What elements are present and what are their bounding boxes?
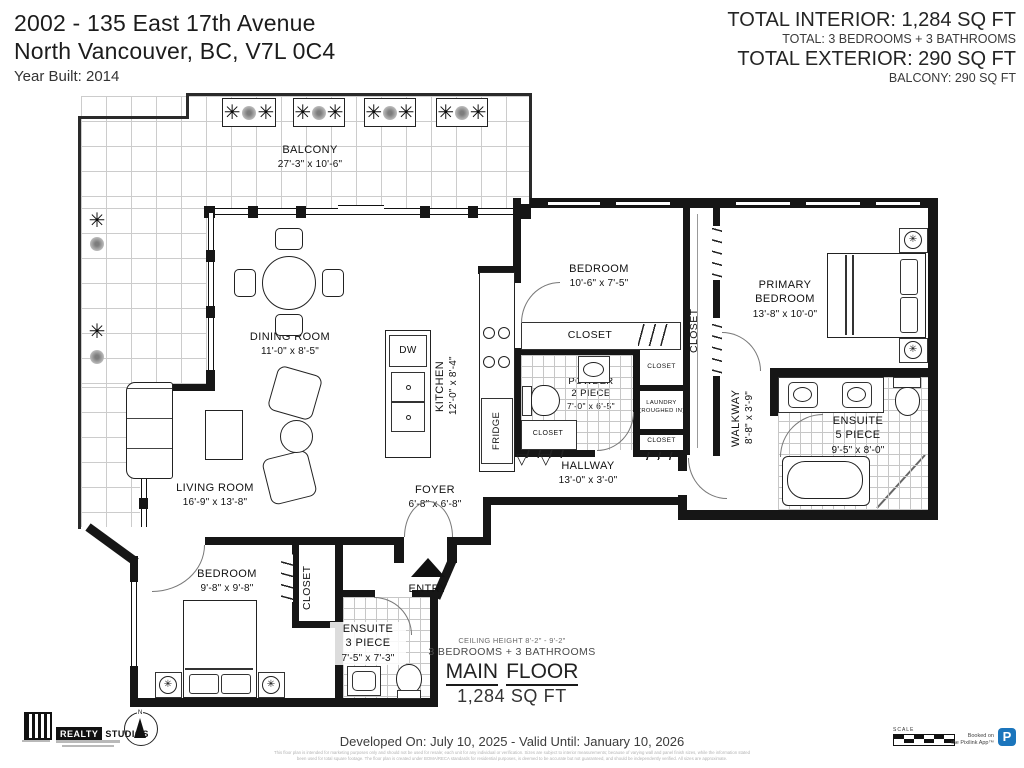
balcony-edge <box>78 116 81 529</box>
closet-wall <box>292 545 299 625</box>
balcony-plant: ✳ <box>83 208 111 254</box>
bifold-door <box>281 554 293 602</box>
disclaimer-line: This floor plan is intended for marketin… <box>0 750 1024 756</box>
closet-label: CLOSET <box>640 363 683 371</box>
shrub-icon <box>455 106 469 120</box>
wall-post <box>139 498 148 509</box>
wall-post <box>206 370 215 384</box>
bed-linen-line <box>185 668 253 670</box>
bed-pillow <box>221 674 251 694</box>
door-leaf-icon: ▽ <box>540 452 552 467</box>
planter-box: ✳✳ <box>222 98 276 127</box>
pixilink-p: P <box>1003 729 1012 744</box>
wall-segment <box>343 590 375 597</box>
plant-icon: ✳ <box>257 103 274 123</box>
wall-segment <box>678 495 687 512</box>
cabinet-knob <box>406 415 411 420</box>
primary-door-arc <box>722 332 761 371</box>
primary-bedroom-label: PRIMARY BEDROOM 13'-8" x 10'-0" <box>743 278 827 321</box>
wall-segment <box>130 556 138 582</box>
dining-chair <box>322 269 344 297</box>
balcony-edge <box>186 93 532 96</box>
ceiling-fan-icon: ✳ <box>159 676 177 694</box>
bifold-door <box>712 318 722 376</box>
powder-closet: CLOSET <box>521 420 577 450</box>
balcony-plant: ✳ <box>83 318 111 368</box>
entry-arrow <box>411 558 445 577</box>
qr-code <box>24 712 52 740</box>
shrub-icon <box>383 106 397 120</box>
stove-burner <box>498 356 510 368</box>
ceiling-fan-icon: ✳ <box>262 676 280 694</box>
entry-jamb <box>394 537 404 563</box>
walkway-door-arc <box>688 458 727 499</box>
nightstand: ✳ <box>155 672 182 698</box>
wall-segment <box>285 537 403 545</box>
dining-chair <box>275 314 303 336</box>
living-room-label: LIVING ROOM 16'-9" x 13'-8" <box>165 481 265 510</box>
window <box>736 201 790 206</box>
window-wall <box>208 213 214 385</box>
wall-post <box>296 206 306 218</box>
nightstand: ✳ <box>258 672 285 698</box>
total-interior-sub: TOTAL: 3 BEDROOMS + 3 BATHROOMS <box>727 32 1016 47</box>
floor-word: MAIN <box>446 660 499 686</box>
bathtub <box>782 456 870 506</box>
sink-basin <box>793 387 812 402</box>
plant-icon: ✳ <box>470 103 487 123</box>
address-line2: North Vancouver, BC, V7L 0C4 <box>14 38 335 65</box>
exterior-wall <box>928 198 938 520</box>
closet-label: CLOSET <box>640 437 683 445</box>
plant-icon: ✳ <box>365 103 382 123</box>
powder-sink <box>578 356 610 383</box>
window <box>806 201 860 206</box>
closet3-label: CLOSET <box>301 552 314 624</box>
stove-burner <box>483 327 495 339</box>
side-table <box>280 420 313 453</box>
bed-linen-line <box>845 255 847 335</box>
balcony-edge <box>186 93 189 118</box>
nightstand: ✳ <box>899 338 928 363</box>
nightstand: ✳ <box>899 228 928 253</box>
totals-block: TOTAL INTERIOR: 1,284 SQ FT TOTAL: 3 BED… <box>727 8 1016 86</box>
bifold-door <box>638 324 668 346</box>
balcony-edge <box>529 93 532 205</box>
disclaimer-line: been used for total square footage. The … <box>0 756 1024 762</box>
compass: N <box>124 712 158 746</box>
ensuite5-toilet-bowl <box>895 387 920 416</box>
shrub-icon <box>242 106 256 120</box>
bedroom2-label: BEDROOM 10'-6" x 7'-5" <box>549 262 649 291</box>
vanity-sink <box>788 382 818 408</box>
island-cabinet <box>391 402 425 432</box>
shrub-icon <box>312 106 326 120</box>
planter-box: ✳✳ <box>293 98 345 127</box>
compass-n-label: N <box>137 710 143 716</box>
floor-plan-page: 2002 - 135 East 17th Avenue North Vancou… <box>0 0 1024 768</box>
stove-burner <box>498 327 510 339</box>
year-built: Year Built: 2014 <box>14 68 119 85</box>
plant-icon: ✳ <box>398 103 415 123</box>
total-exterior: TOTAL EXTERIOR: 290 SQ FT <box>727 47 1016 71</box>
wall-segment <box>770 368 938 377</box>
ensuite3-sink <box>347 666 381 696</box>
walkin-closet-label: CLOSET <box>688 292 701 370</box>
laundry-label: LAUNDRY (ROUGHED IN) <box>639 399 684 415</box>
sink-basin <box>847 387 866 402</box>
floor-area: 1,284 SQ FT <box>392 686 632 707</box>
dining-chair <box>234 269 256 297</box>
sink-basin <box>352 671 376 691</box>
armchair <box>267 365 324 422</box>
walkway-label: WALKWAY 8'-8" x 3'-9" <box>730 378 756 458</box>
ceiling-height-note: CEILING HEIGHT 8'-2" - 9'-2" <box>412 636 612 645</box>
tub-basin <box>787 461 863 499</box>
balcony-label: BALCONY 27'-3" x 10'-6" <box>260 143 360 172</box>
entry-label: ENTRY <box>400 582 456 596</box>
wall-segment <box>483 497 683 505</box>
wall-post <box>206 306 215 318</box>
ceiling-fan-icon: ✳ <box>904 341 922 359</box>
total-interior: TOTAL INTERIOR: 1,284 SQ FT <box>727 8 1016 32</box>
dishwasher-label: DW <box>390 344 426 357</box>
developed-line: Developed On: July 10, 2025 - Valid Unti… <box>312 734 712 749</box>
window <box>876 201 920 206</box>
bed-pillow <box>900 259 918 295</box>
wall-segment <box>770 368 778 416</box>
ensuite5-label: ENSUITE 5 PIECE 9'-5" x 8'-0" <box>815 414 901 457</box>
wall-post <box>468 206 478 218</box>
brand-primary: REALTY <box>56 727 102 741</box>
total-exterior-sub: BALCONY: 290 SQ FT <box>727 71 1016 86</box>
floor-title: MAINFLOOR <box>392 660 632 684</box>
brand-tagline <box>56 740 120 743</box>
exterior-wall <box>678 510 938 520</box>
plant-icon: ✳ <box>327 103 344 123</box>
planter-box: ✳✳ <box>436 98 488 127</box>
plant-icon: ✳ <box>294 103 311 123</box>
closet-label: CLOSET <box>524 429 572 438</box>
plant-icon: ✳ <box>224 103 241 123</box>
armchair <box>261 449 318 506</box>
bifold-door <box>712 226 722 280</box>
plant-icon: ✳ <box>89 322 106 342</box>
dishwasher: DW <box>389 335 427 367</box>
wall-segment <box>455 537 491 545</box>
floor-word: FLOOR <box>506 660 578 686</box>
wall-post <box>206 250 215 262</box>
vanity-sink <box>842 382 872 408</box>
balcony-edge <box>78 116 189 119</box>
shrub-icon <box>90 237 104 251</box>
shrub-icon <box>90 350 104 364</box>
plant-icon: ✳ <box>437 103 454 123</box>
fridge-label: FRIDGE <box>491 403 503 459</box>
booked-on-note: Booked on the Pixilink App™ <box>930 733 994 747</box>
stove-burner <box>483 356 495 368</box>
ceiling-fan-icon: ✳ <box>904 231 922 249</box>
qr-caption <box>22 740 50 742</box>
bedroom2-door-arc <box>521 282 560 323</box>
address-line1: 2002 - 135 East 17th Avenue <box>14 10 316 37</box>
kitchen-label: KITCHEN 12'-0" x 8'-4" <box>434 346 460 426</box>
window <box>616 201 670 206</box>
wall-segment <box>678 455 687 471</box>
door-leaf-icon: ▽ <box>516 452 528 467</box>
powder-toilet-bowl <box>531 385 560 416</box>
compass-needle-icon <box>134 718 146 738</box>
wall-segment <box>640 429 683 435</box>
wall-post <box>248 206 258 218</box>
sliding-balcony-door <box>338 205 384 215</box>
planter-box: ✳✳ <box>364 98 416 127</box>
bifold-door <box>643 452 679 460</box>
dining-table <box>262 256 316 310</box>
cabinet-knob <box>406 385 411 390</box>
fridge: FRIDGE <box>481 398 513 464</box>
sofa <box>126 382 173 479</box>
wall-segment <box>640 385 683 391</box>
wall-post <box>420 206 430 218</box>
bed-pillow <box>900 297 918 333</box>
window-wall <box>131 582 137 666</box>
sink-basin <box>583 362 604 377</box>
bed-pillow <box>189 674 219 694</box>
coffee-table <box>205 410 243 460</box>
bed-linen-line <box>852 255 854 335</box>
dining-chair <box>275 228 303 250</box>
pixilink-logo: P <box>998 728 1016 746</box>
island-cabinet <box>391 372 425 402</box>
brand-tagline <box>62 745 114 747</box>
window <box>548 201 600 206</box>
closet-label: CLOSET <box>540 329 640 343</box>
plant-icon: ✳ <box>89 211 106 231</box>
wall-segment <box>205 537 293 545</box>
beds-baths-note: 3 BEDROOMS + 3 BATHROOMS <box>402 646 622 658</box>
